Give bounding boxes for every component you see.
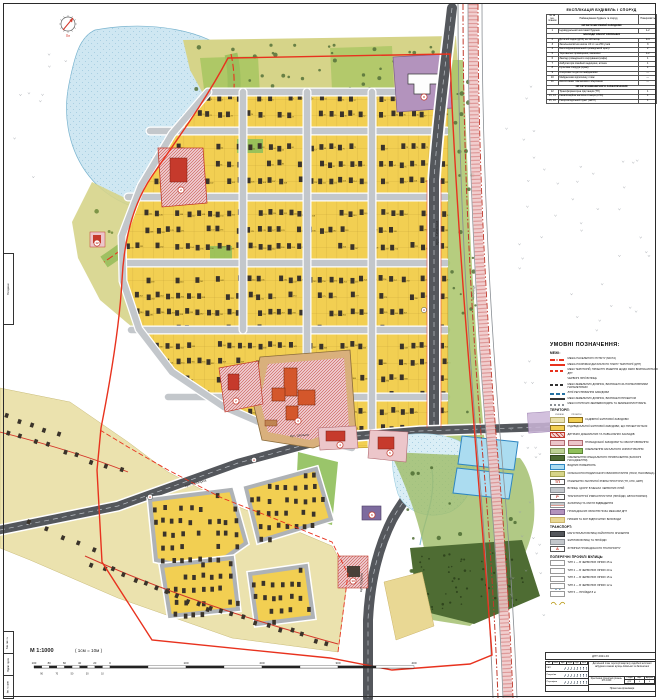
house-footprint xyxy=(289,278,293,284)
house-footprint xyxy=(290,594,294,599)
svg-text:300: 300 xyxy=(335,661,340,665)
house-footprint xyxy=(238,343,242,349)
house-footprint xyxy=(202,587,206,592)
legend-item: ЗАЛІЗНИЦІ ТА СМУГИ ВІДВЕДЕННЯ xyxy=(550,502,658,508)
house-footprint xyxy=(279,595,283,600)
legend-swatch-icon xyxy=(550,432,565,438)
legend-swatch-icon xyxy=(550,393,565,395)
legend-item-label: СІЛЬСЬКОГОСПОДАРСЬКОГО ВИКОРИСТАННЯ (ЛУК… xyxy=(568,471,655,475)
house-footprint xyxy=(227,343,231,349)
house-footprint xyxy=(289,210,293,216)
house-footprint xyxy=(351,292,355,298)
house-footprint xyxy=(381,145,385,151)
house-footprint xyxy=(303,524,307,529)
svg-text:200: 200 xyxy=(259,661,264,665)
legend-mini-headers: ІСНУЮЧІПРОЕКТНІ xyxy=(551,414,658,416)
house-footprint xyxy=(181,531,185,536)
house-footprint xyxy=(185,308,189,314)
legend-swatch-icon xyxy=(550,440,565,446)
house-footprint xyxy=(307,607,311,612)
house-footprint xyxy=(154,520,158,525)
scale-bar: М 1:1000( 1см = 10м )1008060402009070503… xyxy=(30,648,417,675)
legend-swatch-icon xyxy=(550,502,565,508)
signature-mark xyxy=(564,674,587,677)
house-footprint xyxy=(421,245,425,251)
legend-item-label: ТИП 1 — В ЧЕРВОНИХ ЛІНІЯХ 25 м xyxy=(568,560,613,564)
legend-item: ЖИТЛОВІ ВУЛИЦІ ТА ПРОЇЗДИ xyxy=(550,539,658,545)
house-footprint xyxy=(399,309,403,315)
building-marker: 5 xyxy=(387,450,393,456)
house-footprint xyxy=(172,558,176,563)
house-footprint xyxy=(208,211,212,217)
legend-section-title: ПОПЕРЕЧНІ ПРОФІЛІ ВУЛИЦЬ: xyxy=(550,555,658,559)
legend-swatch-icon xyxy=(550,384,565,386)
house-footprint xyxy=(319,344,323,350)
house-footprint xyxy=(175,600,179,605)
house-footprint xyxy=(257,276,261,282)
house-footprint xyxy=(410,242,414,248)
house-footprint xyxy=(267,161,271,167)
school-building-1 xyxy=(284,368,297,396)
house-footprint xyxy=(144,210,148,216)
house-footprint xyxy=(390,309,394,315)
house-footprint xyxy=(218,586,222,591)
legend-item-label: ГРОМАДСЬКОЇ ЗАБУДОВИ ТА ОБСЛУГОВУВАННЯ xyxy=(585,440,648,444)
bus-stop-icon: А xyxy=(147,494,152,499)
stage-grid: СтадіяАрк.АркушівДПТ46 xyxy=(624,677,655,685)
house-footprint xyxy=(199,507,203,512)
house-footprint xyxy=(442,276,446,282)
house-footprint xyxy=(268,226,272,232)
house-footprint xyxy=(312,512,316,517)
house-footprint xyxy=(279,179,283,185)
svg-text:40: 40 xyxy=(78,661,82,665)
svg-text:13: 13 xyxy=(351,579,355,583)
house-footprint xyxy=(258,226,262,232)
title-block: ДПТ 2021-04 Зм.Кільк.Арк.№док.Підп.ДатаГ… xyxy=(545,652,656,692)
house-footprint xyxy=(268,309,272,315)
house-footprint xyxy=(289,607,293,612)
house-footprint xyxy=(202,573,206,578)
house-footprint xyxy=(217,519,221,524)
house-footprint xyxy=(153,507,157,512)
legend-item-label: ДИТЯЧИХ ДОШКІЛЬНИХ ТА НАВЧАЛЬНИХ ЗАКЛАДІ… xyxy=(568,432,635,436)
house-footprint xyxy=(400,344,404,350)
legend-item-label: ЧЕРВОНІ ЛІНІЇ ВУЛИЦЬ xyxy=(568,376,598,380)
house-footprint xyxy=(400,210,404,216)
legend-title: УМОВНІ ПОЗНАЧЕННЯ: xyxy=(550,342,658,348)
legend-swatch-icon xyxy=(550,471,565,477)
house-footprint xyxy=(275,485,279,490)
map-scatter xyxy=(13,54,66,178)
house-footprint xyxy=(289,342,293,348)
svg-text:Пн: Пн xyxy=(66,34,71,38)
house-footprint xyxy=(349,211,353,217)
house-footprint xyxy=(197,293,201,299)
house-footprint xyxy=(360,375,364,381)
legend-swatch-icon xyxy=(550,568,565,574)
house-footprint xyxy=(379,227,383,233)
house-footprint xyxy=(381,377,385,383)
house-footprint xyxy=(312,473,316,478)
edge-stamp: Підпис і дата xyxy=(3,653,14,677)
public-building-1 xyxy=(326,431,345,441)
signature-row: Розробив xyxy=(546,672,588,679)
explication-col-header: Поверховість xyxy=(639,14,657,24)
legend-item: ВОДНИХ ПОВЕРХОНЬ xyxy=(550,464,658,470)
house-footprint xyxy=(166,226,170,232)
house-footprint xyxy=(287,143,291,149)
house-footprint xyxy=(218,358,222,364)
house-footprint xyxy=(380,409,384,415)
house-footprint xyxy=(176,344,180,350)
legend-item: МЕЖА РОЗРОБКИ ДЕТАЛЬНОГО ПЛАНУ ТЕРИТОРІЇ… xyxy=(550,362,658,366)
legend-item: МАГІСТРАЛЬНІ ВУЛИЦІ РАЙОННОГО ЗНАЧЕННЯ xyxy=(550,531,658,537)
kindergarten-s-building xyxy=(228,374,239,390)
legend-section-title: ТЕРИТОРІЇ: xyxy=(550,408,658,412)
house-footprint xyxy=(341,226,345,232)
svg-text:90: 90 xyxy=(40,672,43,675)
approve-stamp: Погоджено xyxy=(3,253,14,325)
legend-swatch-icon xyxy=(550,364,565,366)
house-footprint xyxy=(348,110,352,116)
house-footprint xyxy=(156,308,160,314)
house-footprint xyxy=(197,531,201,536)
house-footprint xyxy=(229,574,233,579)
legend-swatch-icon xyxy=(550,487,565,493)
legend-item-label: МАГІСТРАЛЬНІ ВУЛИЦІ РАЙОННОГО ЗНАЧЕННЯ xyxy=(568,531,630,535)
house-footprint xyxy=(421,276,425,282)
house-footprint xyxy=(187,358,191,364)
house-footprint xyxy=(206,244,210,250)
house-footprint xyxy=(312,497,316,502)
house-footprint xyxy=(284,511,288,516)
legend-item-label: ТИП 4 — В ЧЕРВОНИХ ЛІНІЯХ 12 м xyxy=(568,583,613,587)
signature-grid: Зм.Кільк.Арк.№док.Підп.ДатаГАПРозробивПе… xyxy=(546,662,589,691)
legend-item: ПЛЯЖІВ ТА ЗОН ВІДПОЧИНКУ БІЛЯ ВОДИ xyxy=(550,517,658,523)
house-footprint xyxy=(420,342,424,348)
house-footprint xyxy=(280,608,284,613)
new-block-3 xyxy=(250,566,313,624)
house-footprint xyxy=(207,226,211,232)
legend-item: ВУЛИЦЬ І ДОРІГ В МЕЖАХ ЧЕРВОНИХ ЛІНІЙ xyxy=(550,487,658,493)
house-footprint xyxy=(297,211,301,217)
house-footprint xyxy=(218,243,222,249)
house-footprint xyxy=(329,179,333,185)
house-footprint xyxy=(268,341,272,347)
house-footprint xyxy=(176,227,180,233)
house-footprint xyxy=(205,111,209,117)
svg-text:50: 50 xyxy=(71,672,74,675)
house-footprint xyxy=(175,310,179,316)
house-footprint xyxy=(198,358,202,364)
house-footprint xyxy=(320,228,324,234)
document-number: ДПТ 2021-04 xyxy=(545,652,656,660)
legend-item: ІНДИВІДУАЛЬНОЇ ЖИТЛОВОЇ ЗАБУДОВИ, ЩО ПРО… xyxy=(550,425,658,431)
house-footprint xyxy=(402,277,406,283)
legend-item: ЛІНІЇ РЕГУЛЮВАННЯ ЗАБУДОВИ xyxy=(550,391,658,395)
house-footprint xyxy=(187,342,191,348)
legend-item: ЧЕРВОНІ ЛІНІЇ ВУЛИЦЬ xyxy=(550,376,658,380)
house-footprint xyxy=(262,581,266,586)
house-footprint xyxy=(410,294,414,300)
house-footprint xyxy=(411,360,415,366)
legend-item-label: ЛІНІЇ РЕГУЛЮВАННЯ ЗАБУДОВИ xyxy=(568,391,610,395)
house-footprint xyxy=(269,144,273,150)
legend-swatch-icon xyxy=(550,464,565,470)
house-footprint xyxy=(218,341,222,347)
house-footprint xyxy=(390,245,394,251)
legend-swatch-icon xyxy=(550,378,565,380)
house-footprint xyxy=(338,310,342,316)
legend-item-label: МЕЖІ ІСНУЮЧИХ ЗЕМЛЕВОЛОДІНЬ ТА ЗЕМЛЕКОРИ… xyxy=(568,402,647,406)
house-footprint xyxy=(252,582,256,587)
legend-item: АЗУПИНКИ ГРОМАДСЬКОГО ТРАНСПОРТУ xyxy=(550,546,658,552)
house-footprint xyxy=(279,209,283,215)
svg-text:А: А xyxy=(423,308,425,312)
legend-item: ТИП 1 — В ЧЕРВОНИХ ЛІНІЯХ 25 м xyxy=(550,560,658,566)
legend-swatch-icon xyxy=(550,370,565,372)
house-footprint xyxy=(340,343,344,349)
house-footprint xyxy=(215,310,219,316)
kindergarten-s-hatch xyxy=(219,361,263,412)
house-footprint xyxy=(379,96,383,102)
house-footprint xyxy=(349,143,353,149)
house-footprint xyxy=(297,276,301,282)
house-footprint xyxy=(163,532,167,537)
house-footprint xyxy=(302,510,306,515)
building-marker: 4 xyxy=(337,442,343,448)
legend-swatch-icon: А xyxy=(550,546,565,552)
house-footprint xyxy=(229,561,233,566)
legend-swatch-icon xyxy=(568,448,583,454)
house-footprint xyxy=(329,293,333,299)
legend-swatch-icon xyxy=(550,531,565,537)
house-footprint xyxy=(176,278,180,284)
house-footprint xyxy=(420,359,424,365)
house-footprint xyxy=(235,532,239,537)
legend-item: МЕЖА НАСЕЛЕНОГО ПУНКТУ (МІСТА) xyxy=(550,357,658,361)
drawing-sheet: 1234567891011121314151617181920212223242… xyxy=(0,0,659,700)
house-footprint xyxy=(161,546,165,551)
house-footprint xyxy=(271,582,275,587)
house-footprint xyxy=(189,520,193,525)
house-footprint xyxy=(259,244,263,250)
house-footprint xyxy=(284,485,288,490)
house-footprint xyxy=(147,278,151,284)
house-footprint xyxy=(339,161,343,167)
legend-item: ТИП 5 — ПРОЇЗДИ 8 м xyxy=(550,591,658,597)
house-footprint xyxy=(184,614,188,619)
house-footprint xyxy=(161,558,165,563)
building-marker: 8 xyxy=(421,94,427,100)
legend-item: МЕЖІ ЗЕМЕЛЬНИХ ДІЛЯНОК, ВИЗНАЧЕНІ ПРОЕКТ… xyxy=(550,396,658,400)
signature-row: Перевірив xyxy=(546,679,588,686)
house-footprint xyxy=(259,210,263,216)
house-footprint xyxy=(216,493,220,498)
house-footprint xyxy=(254,594,258,599)
house-footprint xyxy=(188,557,192,562)
house-footprint xyxy=(339,278,343,284)
legend-item-label: МЕЖІ ТЕРИТОРІЙ, ПРОЕКТНІ РІШЕННЯ ЩОДО ЯК… xyxy=(568,368,659,375)
signature-mark xyxy=(564,667,587,670)
house-footprint xyxy=(174,612,178,617)
house-footprint xyxy=(248,343,252,349)
project-title: Детальний план території кварталу садибн… xyxy=(589,662,655,677)
house-footprint xyxy=(217,96,221,102)
house-footprint xyxy=(218,112,222,118)
street-label: залізниця xyxy=(471,285,476,300)
house-footprint xyxy=(198,110,202,116)
legend-item: МЕЖІ ЗЕМЕЛЬНИХ ДІЛЯНОК, ВИЗНАЧЕНІ ЗА НОР… xyxy=(550,382,658,389)
kindergarten-nw-building xyxy=(170,158,187,182)
house-footprint xyxy=(186,243,190,249)
legend-item-label: ТИП 3 — В ЧЕРВОНИХ ЛІНІЯХ 15 м xyxy=(568,576,613,580)
house-footprint xyxy=(170,519,174,524)
legend-item: ТПІНЖЕНЕРНО-ТЕХНІЧНОЇ ІНФРАСТРУКТУРИ (ТП… xyxy=(550,479,658,485)
house-footprint xyxy=(350,278,354,284)
house-footprint xyxy=(399,359,403,365)
house-footprint xyxy=(174,587,178,592)
house-footprint xyxy=(249,243,253,249)
house-footprint xyxy=(400,374,404,380)
explication-title: ЕКСПЛІКАЦІЯ БУДІВЕЛЬ І СПОРУД xyxy=(546,8,657,12)
house-footprint xyxy=(379,275,383,281)
house-footprint xyxy=(349,96,353,102)
house-footprint xyxy=(216,544,220,549)
house-footprint xyxy=(389,276,393,282)
house-footprint xyxy=(297,227,301,233)
house-footprint xyxy=(277,160,281,166)
house-footprint xyxy=(226,245,230,251)
house-footprint xyxy=(192,588,196,593)
house-footprint xyxy=(145,311,149,317)
house-footprint xyxy=(400,178,404,184)
house-footprint xyxy=(188,212,192,218)
house-footprint xyxy=(207,310,211,316)
house-footprint xyxy=(217,558,221,563)
house-footprint xyxy=(351,309,355,315)
house-footprint xyxy=(379,293,383,299)
legend-item-label: ТРАНСПОРТНОЇ ІНФРАСТРУКТУРИ (ПРОЇЗДИ, АВ… xyxy=(568,494,648,498)
public-building-2 xyxy=(378,437,394,449)
house-footprint xyxy=(216,531,220,536)
school-annex-1 xyxy=(265,420,277,426)
legend-item: РТРАНСПОРТНОЇ ІНФРАСТРУКТУРИ (ПРОЇЗДИ, А… xyxy=(550,494,658,500)
svg-text:70: 70 xyxy=(55,672,58,675)
house-footprint xyxy=(358,344,362,350)
legend-swatch-icon xyxy=(550,509,565,515)
house-footprint xyxy=(400,162,404,168)
legend-item-label: ІНЖЕНЕРНО-ТЕХНІЧНОЇ ІНФРАСТРУКТУРИ (ТП, … xyxy=(568,479,644,483)
legend-item-label: ТИП 5 — ПРОЇЗДИ 8 м xyxy=(568,591,596,595)
house-footprint xyxy=(147,294,151,300)
building-marker: 12 xyxy=(94,240,100,246)
house-footprint xyxy=(358,161,362,167)
house-footprint xyxy=(358,408,362,414)
house-footprint xyxy=(442,211,446,217)
house-footprint xyxy=(275,511,279,516)
house-footprint xyxy=(299,596,303,601)
house-footprint xyxy=(360,209,364,215)
legend-item-label: ОЗЕЛЕНЕННЯ СПЕЦІАЛЬНОГО ПРИЗНАЧЕННЯ (ЗАХ… xyxy=(568,455,659,462)
house-footprint xyxy=(216,144,220,150)
house-footprint xyxy=(192,575,196,580)
explication-col-header: № за ген. планом xyxy=(547,14,559,24)
house-footprint xyxy=(224,531,228,536)
svg-text:( 1см = 10м ): ( 1см = 10м ) xyxy=(75,648,103,653)
house-footprint xyxy=(216,276,220,282)
legend-swatch-icon: Р xyxy=(550,494,565,500)
legend-item-label: МЕЖІ ЗЕМЕЛЬНИХ ДІЛЯНОК, ВИЗНАЧЕНІ ПРОЕКТ… xyxy=(568,396,636,400)
house-footprint xyxy=(190,505,194,510)
legend-swatch-icon xyxy=(550,359,565,361)
legend-swatch-icon xyxy=(550,591,565,597)
legend-item-label: ВОДНИХ ПОВЕРХОНЬ xyxy=(568,464,596,468)
house-footprint xyxy=(421,143,425,149)
legend-item-label: МЕЖА РОЗРОБКИ ДЕТАЛЬНОГО ПЛАНУ ТЕРИТОРІЇ… xyxy=(568,362,642,366)
house-footprint xyxy=(318,179,322,185)
house-footprint xyxy=(391,111,395,117)
house-footprint xyxy=(277,243,281,249)
house-footprint xyxy=(389,161,393,167)
building-marker: 13 xyxy=(350,578,356,584)
house-footprint xyxy=(349,177,353,183)
house-footprint xyxy=(277,523,281,528)
house-footprint xyxy=(297,243,301,249)
legend: УМОВНІ ПОЗНАЧЕННЯ: МЕЖІ:МЕЖА НАСЕЛЕНОГО … xyxy=(550,340,658,600)
house-footprint xyxy=(379,112,383,118)
house-footprint xyxy=(195,277,199,283)
legend-swatch-icon xyxy=(550,539,565,545)
legend-item-label: МЕЖІ ЗЕМЕЛЬНИХ ДІЛЯНОК, ВИЗНАЧЕНІ ЗА НОР… xyxy=(568,382,659,389)
house-footprint xyxy=(175,210,179,216)
house-footprint xyxy=(135,242,139,248)
school-building-3 xyxy=(298,390,315,405)
svg-text:10: 10 xyxy=(101,672,104,675)
house-footprint xyxy=(297,582,301,587)
house-footprint xyxy=(330,277,334,283)
house-footprint xyxy=(191,612,195,617)
house-footprint xyxy=(443,359,447,365)
legend-item: САДИБНОЇ ЖИТЛОВОЇ ЗАБУДОВИ xyxy=(550,417,658,423)
house-footprint xyxy=(215,226,219,232)
house-footprint xyxy=(155,211,159,217)
house-footprint xyxy=(411,343,415,349)
svg-text:А: А xyxy=(253,458,255,462)
building-marker: 3 xyxy=(295,418,301,424)
house-footprint xyxy=(171,533,175,538)
svg-text:100: 100 xyxy=(183,661,188,665)
house-footprint xyxy=(227,162,231,168)
house-footprint xyxy=(422,211,426,217)
house-footprint xyxy=(294,486,298,491)
house-footprint xyxy=(224,520,228,525)
house-footprint xyxy=(206,359,210,365)
house-footprint xyxy=(167,309,171,315)
legend-swatch-icon xyxy=(550,417,565,423)
house-footprint xyxy=(421,160,425,166)
house-footprint xyxy=(304,499,308,504)
house-footprint xyxy=(278,342,282,348)
house-footprint xyxy=(236,358,240,364)
explication-row: 15, 16Газорозподільний пункт (ШРП)1 xyxy=(547,99,657,104)
house-footprint xyxy=(304,485,308,490)
house-footprint xyxy=(163,505,167,510)
svg-text:400: 400 xyxy=(411,661,416,665)
house-footprint xyxy=(318,292,322,298)
house-footprint xyxy=(197,210,201,216)
